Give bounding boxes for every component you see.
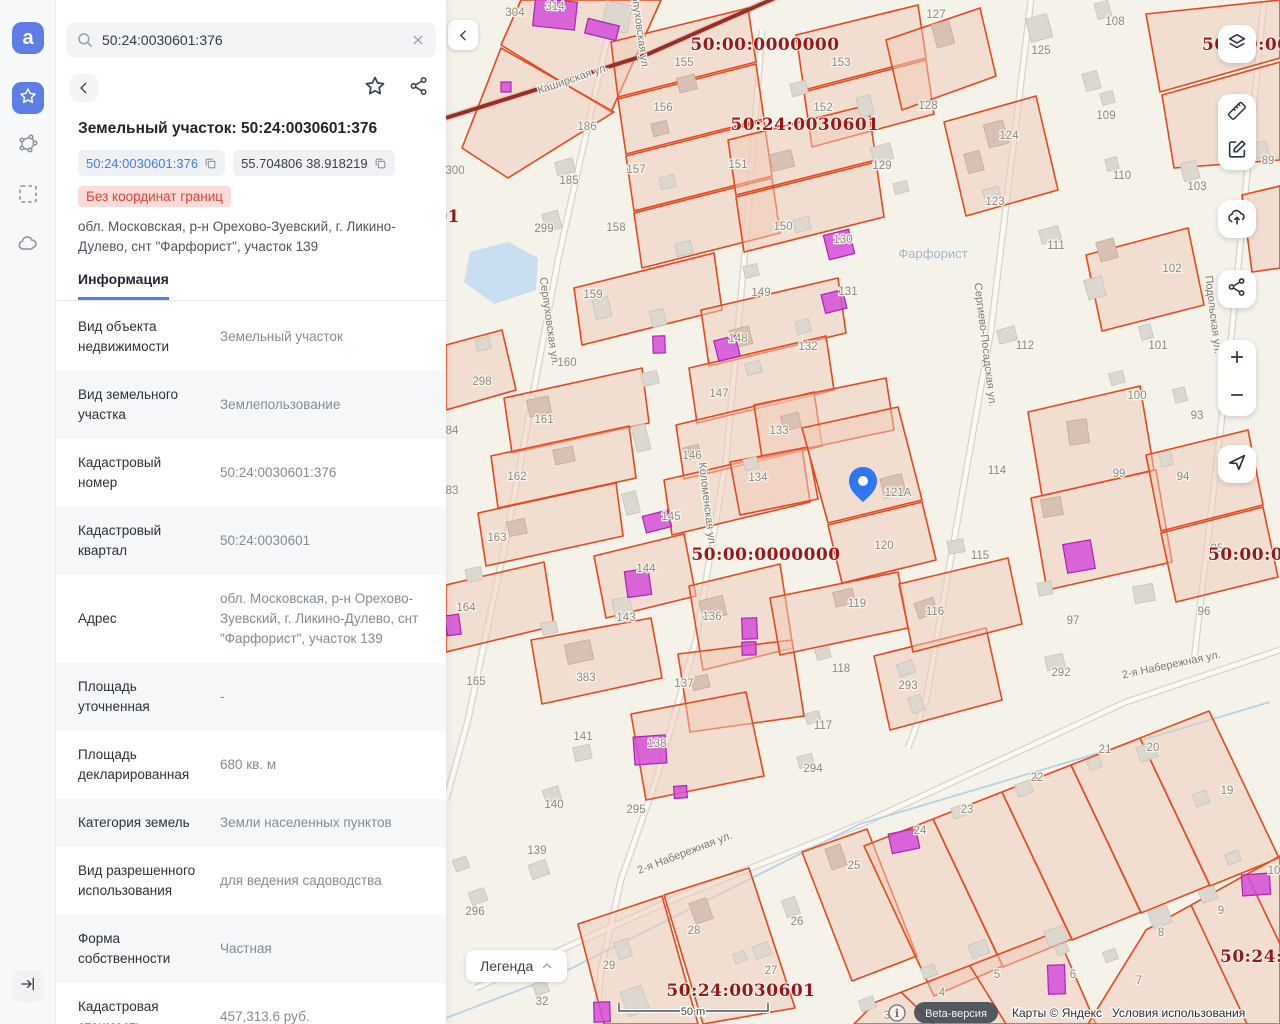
cloud-upload-icon [1226,206,1248,233]
parcel-number-label: 156 [653,102,672,114]
share-map-control [1218,270,1256,308]
info-row-label: Форма собственности [78,929,204,969]
parcel-number-label: 123 [985,196,1004,208]
building [795,318,812,334]
parcel-number-label: 124 [999,130,1019,142]
info-row-label: Вид земельного участка [78,385,204,425]
parcel-number-label: 150 [773,221,792,233]
zoom-in-button[interactable] [1218,340,1256,378]
parcel-number-label: 5 [994,969,1000,981]
sidebar-item-favorites[interactable] [12,82,44,114]
parcel-number-label: 26 [791,916,804,928]
quarter-code-label: 50:24:0030601 [446,207,460,227]
parcel-number-label: 94 [1177,471,1190,483]
minus-icon [1227,385,1247,410]
info-row: Кадастровая стоимость457,313.6 руб. [56,983,446,1024]
share-map-button[interactable] [1218,270,1256,308]
parcel-number-label: 115 [971,550,989,562]
parcel-number-label: 103 [1187,181,1206,193]
parcel-number-label: 32 [536,996,549,1008]
parcel-number-label: 144 [636,563,656,575]
parcel-number-label: 129 [872,160,891,172]
cadastral-map-app: a [0,0,1280,1024]
parcel-number-label: 185 [559,175,578,187]
chevron-up-icon [541,960,553,972]
collapse-panel-button[interactable] [448,20,478,50]
info-row: Вид земельного участкаЗемлепользование [56,371,446,439]
parcel-number-label: 130 [833,234,852,246]
layers-button[interactable] [1218,25,1256,63]
selected-building[interactable] [1241,873,1270,896]
parcel-number-label: 300 [446,165,465,177]
status-badge: Без координат границ [78,186,231,207]
selected-building[interactable] [501,82,511,92]
locate-control [1218,445,1256,483]
layers-control [1218,25,1256,63]
map-copyright[interactable]: Карты © Яндекс [1012,1006,1102,1020]
coordinates-chip[interactable]: 55.704806 38.918219 [233,150,395,176]
info-row-value: Земли населенных пунктов [220,813,432,833]
copy-icon[interactable] [374,157,387,170]
parcel-number-label: 112 [1016,340,1034,352]
parcel-number-label: 121A [885,487,912,499]
building [475,337,491,352]
parcel-number-label: 159 [583,289,602,301]
parcel-number-label: 110 [1113,170,1131,182]
info-row: Вид объекта недвижимостиЗемельный участо… [56,303,446,371]
parcel-number-label: 96 [1198,606,1211,618]
ruler-icon [1226,100,1248,127]
selected-building[interactable] [674,786,688,799]
parcel-number-label: 132 [798,341,817,353]
info-row: Площадь декларированная680 кв. м [56,731,446,799]
parcel-number-label: 4 [939,987,946,999]
parcel-number-label: 161 [534,414,553,426]
parcel-number-label: 137 [674,678,693,690]
place-label: Фарфорист [898,246,967,261]
info-row-value: 457,313.6 руб. [220,1007,432,1024]
parcel-number-label: 152 [813,102,832,114]
info-row: Категория земельЗемли населенных пунктов [56,799,446,847]
parcel-number-label: 20 [1147,742,1160,754]
share-button[interactable] [406,75,432,101]
edit-button[interactable] [1218,132,1256,170]
parcel-number-label: 89 [1262,155,1275,167]
parcel-number-label: 153 [831,57,850,69]
measure-edit-control [1218,94,1256,170]
cadastral-number-chip[interactable]: 50:24:0030601:376 [78,150,225,176]
parcel-number-label: 29 [603,960,616,972]
building [1041,496,1064,517]
parcel-number-label: 127 [926,9,945,21]
info-row-value: для ведения садоводства [220,871,432,891]
parcel-number-label: 133 [769,425,788,437]
parcel-number-label: 25 [848,860,861,872]
parcel-number-label: 157 [626,164,645,176]
parcel-number-label: 118 [832,663,850,675]
clear-search-icon[interactable] [410,32,426,48]
info-row-label: Вид разрешенного использования [78,861,204,901]
parcel-number-label: 97 [1067,615,1080,627]
info-row-value: 50:24:0030601:376 [220,463,432,483]
parcel-number-label: 165 [466,676,485,688]
object-panel: Земельный участок: 50:24:0030601:376 50:… [56,0,446,1024]
share-icon [1226,276,1248,303]
parcel-number-label: 162 [507,471,526,483]
zoom-out-button[interactable] [1218,378,1256,416]
sidebar-item-polygon[interactable] [16,132,40,156]
object-address: обл. Московская, р-н Орехово-Зуевский, г… [78,217,418,257]
parcel-number-label: 134 [748,472,768,484]
parcel-number-label: 143 [616,612,635,624]
parcel-number-label: 296 [465,906,484,918]
parcel-number-label: 293 [898,680,917,692]
building [1037,581,1053,596]
info-row-value: Частная [220,939,432,959]
svg-text:i: i [895,1007,899,1020]
parcel-number-label: 158 [606,222,625,234]
parcel-number-label: 22 [1031,772,1044,784]
building [541,621,558,636]
info-row-value: Земельный участок [220,327,432,347]
plus-icon [1227,347,1247,372]
icon-rail: a [0,0,56,1024]
selected-building[interactable] [1063,540,1096,573]
tab-information[interactable]: Информация [78,271,169,300]
info-row-label: Площадь уточненная [78,677,204,717]
map-canvas[interactable]: 3043141861852993008483298159160161162163… [446,0,1280,1024]
share-icon [408,75,430,102]
parcel-number-label: 27 [765,965,778,977]
parcel-number-label: 109 [1096,110,1115,122]
terms-link[interactable]: Условия использования [1112,1006,1245,1020]
parcel-number-label: 116 [926,606,944,618]
building [947,539,965,555]
quarter-code-label: 50:00:0000000 [690,35,839,55]
parcel-number-label: 21 [1099,744,1112,756]
star-outline-icon [363,74,387,103]
app-logo[interactable]: a [12,22,44,54]
polygon-icon [16,143,40,160]
ruler-button[interactable] [1218,94,1256,132]
parcel-number-label: 28 [688,925,701,937]
copy-icon[interactable] [204,157,217,170]
quarter-code-label: 50:24:0030601 [666,981,815,1001]
parcel-number-label: 299 [534,223,553,235]
parcel-number-label: 19 [1221,785,1234,797]
search-icon [76,31,94,49]
sidebar-item-select-area[interactable] [16,182,40,206]
locate-button[interactable] [1218,445,1256,483]
info-row: Кадастровый номер50:24:0030601:376 [56,439,446,507]
parcel-number-label: 111 [1047,240,1064,252]
select-area-icon [16,193,40,210]
info-row-label: Вид объекта недвижимости [78,317,204,357]
legend-label: Легенда [480,958,533,974]
parcel-number-label: 304 [505,7,525,19]
parcel-number-label: 102 [1162,263,1181,275]
parcel-number-label: 139 [527,845,546,857]
parcel-number-label: 147 [709,388,728,400]
parcel-number-label: 101 [1148,340,1167,352]
cloud-icon [16,243,40,260]
info-row-value: 50:24:0030601 [220,531,432,551]
exit-button[interactable] [12,970,44,1002]
info-row-value: - [220,687,432,707]
parcel-number-label: 117 [814,720,832,732]
info-row: Площадь уточненная- [56,663,446,731]
locate-arrow-icon [1226,451,1248,478]
parcel-number-label: 155 [674,57,693,69]
parcel-number-label: 298 [472,376,491,388]
page-title: Земельный участок: 50:24:0030601:376 [78,120,424,138]
parcel-number-label: 164 [456,602,476,614]
parcel-number-label: 131 [838,286,857,298]
selected-building[interactable] [1047,965,1065,995]
parcel-number-label: 146 [682,450,701,462]
building [1066,419,1089,446]
building [507,518,528,536]
info-row-value: 680 кв. м [220,755,432,775]
parcel-number-label: 145 [661,511,680,523]
parcel-number-label: 141 [573,731,592,743]
search-bar[interactable] [66,22,436,58]
parcel-number-label: 148 [728,333,747,345]
star-icon [18,86,38,111]
sidebar-item-cloud[interactable] [16,232,40,256]
parcel-number-label: 100 [1127,390,1146,402]
scale-label: 50 m [681,1006,705,1018]
selected-building[interactable] [446,614,461,636]
selected-building[interactable] [594,1002,611,1023]
parcel-number-label: 125 [1031,45,1050,57]
back-button[interactable] [70,74,98,102]
zoom-control [1218,340,1256,416]
building [573,744,593,761]
quarter-code-label: 50:00:0000000 [691,545,840,565]
parcel-number-label: 138 [647,738,666,750]
info-row-label: Кадастровый квартал [78,521,204,561]
building [1133,583,1156,603]
map-container[interactable]: 3043141861852993008483298159160161162163… [446,0,1280,1024]
selected-building[interactable] [742,642,756,655]
info-row: Адресобл. Московская, р-н Орехово-Зуевск… [56,575,446,663]
exit-icon [19,975,37,998]
building [465,566,483,582]
parcel-number-label: 140 [544,799,563,811]
parcel-number-label: 99 [1113,468,1126,480]
info-row: Кадастровый квартал50:24:0030601 [56,507,446,575]
parcel-number-label: 84 [446,425,459,437]
selected-building[interactable] [742,618,758,640]
parcel-number-label: 8 [1158,927,1164,939]
info-row: Форма собственностиЧастная [56,915,446,983]
quarter-code-label: 50:00:0000000 [1208,545,1280,565]
parcel-number-label: 120 [874,540,893,552]
parcel-number-label: 163 [487,532,506,544]
parcel-number-label: 128 [918,100,937,112]
parcel-number-label: 23 [961,804,974,816]
parcel-number-label: 186 [577,121,596,133]
parcel-number-label: 383 [576,672,595,684]
edit-icon [1226,138,1248,165]
info-row-value: Землепользование [220,395,432,415]
parcel-number-label: 108 [1105,16,1124,28]
parcel-number-label: 149 [751,287,770,299]
layers-icon [1226,31,1248,58]
parcel-number-label: 7 [1136,975,1142,987]
parcel-number-label: 10 [1268,865,1280,877]
parcel-number-label: 93 [1191,410,1204,422]
upload-control [1218,200,1256,238]
search-input[interactable] [102,32,410,48]
parcel-number-label: 295 [626,804,645,816]
parcel-number-label: 292 [1051,667,1070,679]
quarter-code-label: 50:24:0030601 [1220,947,1280,967]
info-row-label: Адрес [78,609,204,629]
info-row-label: Площадь декларированная [78,745,204,785]
parcel-number-label: 24 [914,825,927,837]
cloud-upload-button[interactable] [1218,200,1256,238]
legend-button[interactable]: Легенда [466,950,567,982]
panel-tabs: Информация [56,271,446,301]
parcel-number-label: 83 [446,485,458,497]
info-row-value: обл. Московская, р-н Орехово-Зуевский, г… [220,589,432,649]
parcel-number-label: 119 [848,598,866,610]
beta-label: Beta-версия [925,1008,987,1020]
info-row-label: Категория земель [78,813,204,833]
parcel-number-label: 114 [988,465,1007,477]
parcel-number-label: 9 [1218,905,1224,917]
favorite-button[interactable] [362,75,388,101]
parcel-number-label: 6 [1070,969,1076,981]
info-table: Вид объекта недвижимостиЗемельный участо… [56,303,446,1024]
info-row: Вид разрешенного использованиядля ведени… [56,847,446,915]
parcel-number-label: 136 [702,611,721,623]
info-row-label: Кадастровый номер [78,453,204,493]
parcel-number-label: 151 [728,159,747,171]
selected-building[interactable] [653,336,666,353]
quarter-code-label: 50:24:0030601 [730,115,879,135]
parcel-number-label: 294 [803,763,823,775]
info-row-label: Кадастровая стоимость [78,997,204,1024]
parcel-number-label: 314 [545,1,565,13]
